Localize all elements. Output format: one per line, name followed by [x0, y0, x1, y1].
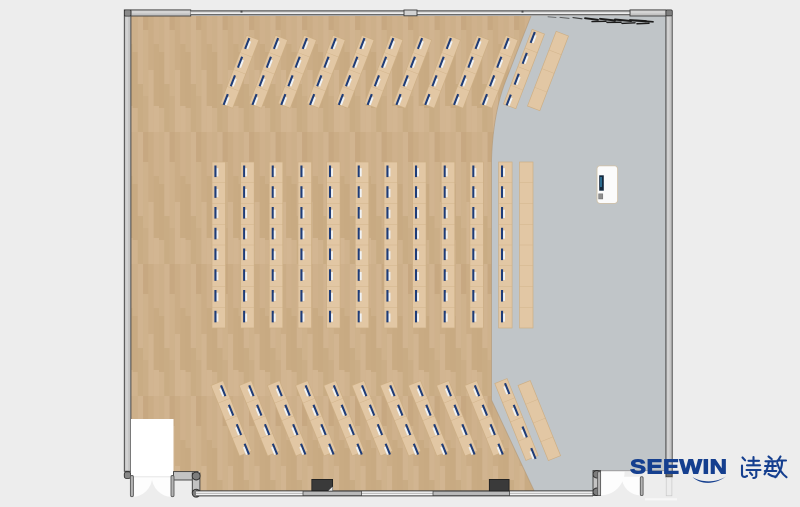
- svg-text:SEEWIN: SEEWIN: [630, 456, 728, 479]
